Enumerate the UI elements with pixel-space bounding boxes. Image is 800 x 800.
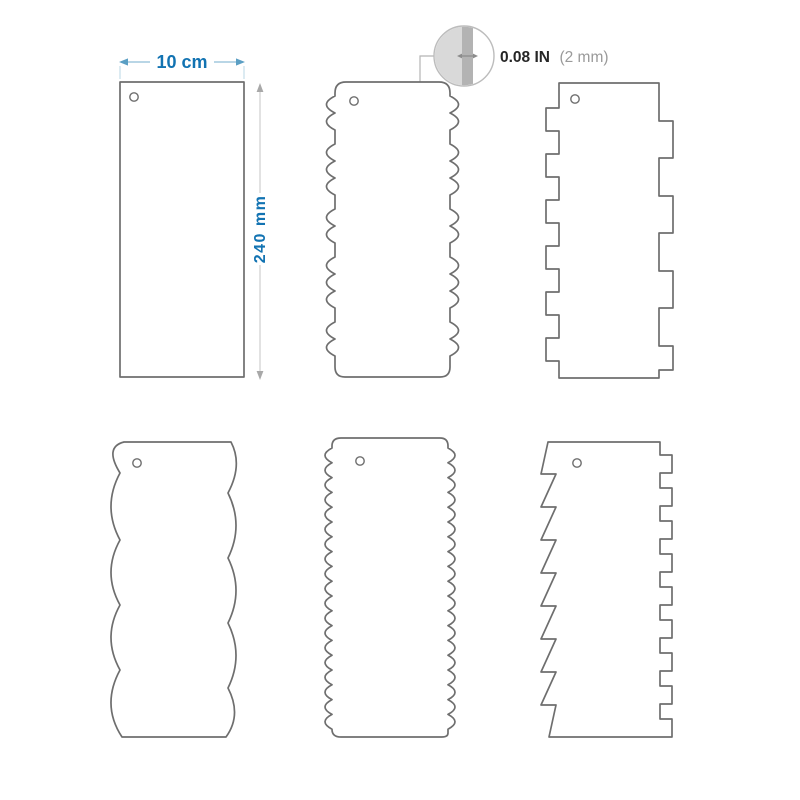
large-scallop-comb-shape [111,442,236,737]
width-arrow-right-icon [236,58,245,65]
fine-wave-comb-shape [325,438,455,737]
scraper-shapes [111,82,673,737]
height-arrow-up-icon [257,83,264,92]
grouped-scallop-comb-hole [350,97,358,105]
square-tooth-comb-hole [571,95,579,103]
large-scallop-comb-hole [133,459,141,467]
height-dimension: 240 mm [252,83,269,380]
height-label: 240 mm [252,195,269,264]
square-tooth-comb-shape [546,83,673,378]
width-label: 10 cm [156,52,207,72]
height-arrow-down-icon [257,371,264,380]
thickness-value: 0.08 IN [500,49,550,66]
plain-scraper-hole [130,93,138,101]
grouped-scallop-comb-shape [327,82,459,377]
sawtooth-comb-shape [541,442,672,737]
callout-leader-line [420,56,434,82]
thickness-label: 0.08 IN (2 mm) [500,49,609,66]
width-arrow-left-icon [119,58,128,65]
thickness-arrow-right-icon [473,54,478,59]
thickness-metric: (2 mm) [559,49,608,66]
width-dimension: 10 cm [119,52,245,79]
sawtooth-comb-hole [573,459,581,467]
scraper-set-diagram: 10 cm 240 mm 0.08 IN (2 mm) [0,0,800,800]
thickness-callout: 0.08 IN (2 mm) [420,26,609,86]
plain-scraper-shape [120,82,244,377]
fine-wave-comb-hole [356,457,364,465]
